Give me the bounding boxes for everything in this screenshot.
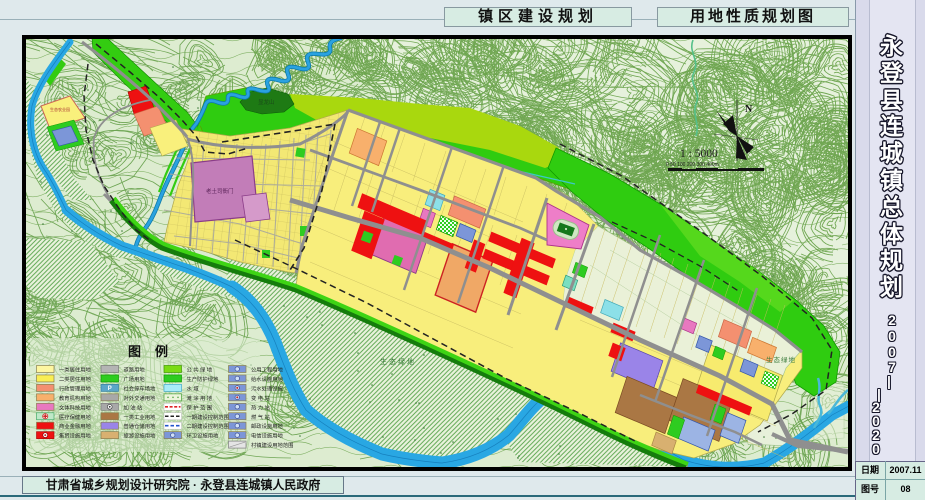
svg-text:普通仓储用地: 普通仓储用地	[124, 422, 156, 430]
svg-text:燃 气 站: 燃 气 站	[251, 413, 271, 421]
svg-text:加 油 站: 加 油 站	[124, 403, 144, 411]
svg-text:广场用地: 广场用地	[124, 375, 146, 383]
svg-text:一类工业用地: 一类工业用地	[124, 413, 156, 421]
svg-text:0 50 100 200 300: 0 50 100 200 300 400m	[666, 162, 719, 168]
svg-text:生态绿地: 生态绿地	[766, 355, 796, 364]
svg-text:生态绿地: 生态绿地	[380, 357, 416, 366]
svg-text:二类居住用地: 二类居住用地	[59, 375, 91, 383]
svg-text:变 电 站: 变 电 站	[251, 394, 271, 402]
svg-text:集贸设施用地: 集贸设施用地	[59, 432, 91, 440]
svg-text:文体科技用地: 文体科技用地	[59, 403, 91, 411]
svg-text:医疗保健用地: 医疗保健用地	[59, 413, 91, 421]
svg-text:给水设施用地: 给水设施用地	[251, 375, 283, 383]
svg-text:一类居住用地: 一类居住用地	[59, 366, 91, 374]
svg-text:保 护 范 围: 保 护 范 围	[187, 403, 213, 411]
svg-text:公 共 绿 地: 公 共 绿 地	[187, 366, 213, 374]
svg-text:显龙山: 显龙山	[258, 98, 275, 106]
svg-text:生态农业园: 生态农业园	[50, 106, 70, 112]
svg-text:热 力 站: 热 力 站	[251, 403, 271, 411]
svg-text:邮政设施用地: 邮政设施用地	[251, 422, 283, 430]
svg-text:教育机构用地: 教育机构用地	[59, 394, 91, 402]
svg-text:N: N	[745, 104, 753, 115]
svg-text:公用工程用地: 公用工程用地	[251, 366, 283, 374]
svg-text:滩 涂 用 地: 滩 涂 用 地	[187, 394, 213, 402]
svg-text:一期建设控制范围: 一期建设控制范围	[187, 413, 229, 421]
svg-text:行政管理用地: 行政管理用地	[59, 384, 91, 392]
svg-text:商业金融用地: 商业金融用地	[59, 422, 91, 430]
svg-text:电信设施用地: 电信设施用地	[251, 432, 283, 440]
svg-text:污水处理设施: 污水处理设施	[251, 384, 283, 392]
svg-text:旅游设施用地: 旅游设施用地	[124, 432, 156, 440]
svg-text:水 域: 水 域	[187, 384, 200, 392]
svg-text:环卫设施用地: 环卫设施用地	[187, 432, 219, 440]
svg-text:生产防护绿地: 生产防护绿地	[187, 375, 219, 383]
svg-text:1 : 5000: 1 : 5000	[680, 148, 718, 160]
svg-text:老土司衙门: 老土司衙门	[206, 187, 234, 195]
svg-text:图例: 图例	[128, 344, 182, 359]
svg-text:对外交通用地: 对外交通用地	[124, 394, 156, 402]
svg-text:P: P	[108, 386, 112, 392]
svg-text:村镇建设用地范围: 村镇建设用地范围	[251, 441, 293, 449]
svg-text:社会停车场地: 社会停车场地	[124, 384, 156, 392]
svg-text:道路用地: 道路用地	[124, 366, 146, 374]
svg-text:二期建设控制范围: 二期建设控制范围	[187, 422, 229, 430]
